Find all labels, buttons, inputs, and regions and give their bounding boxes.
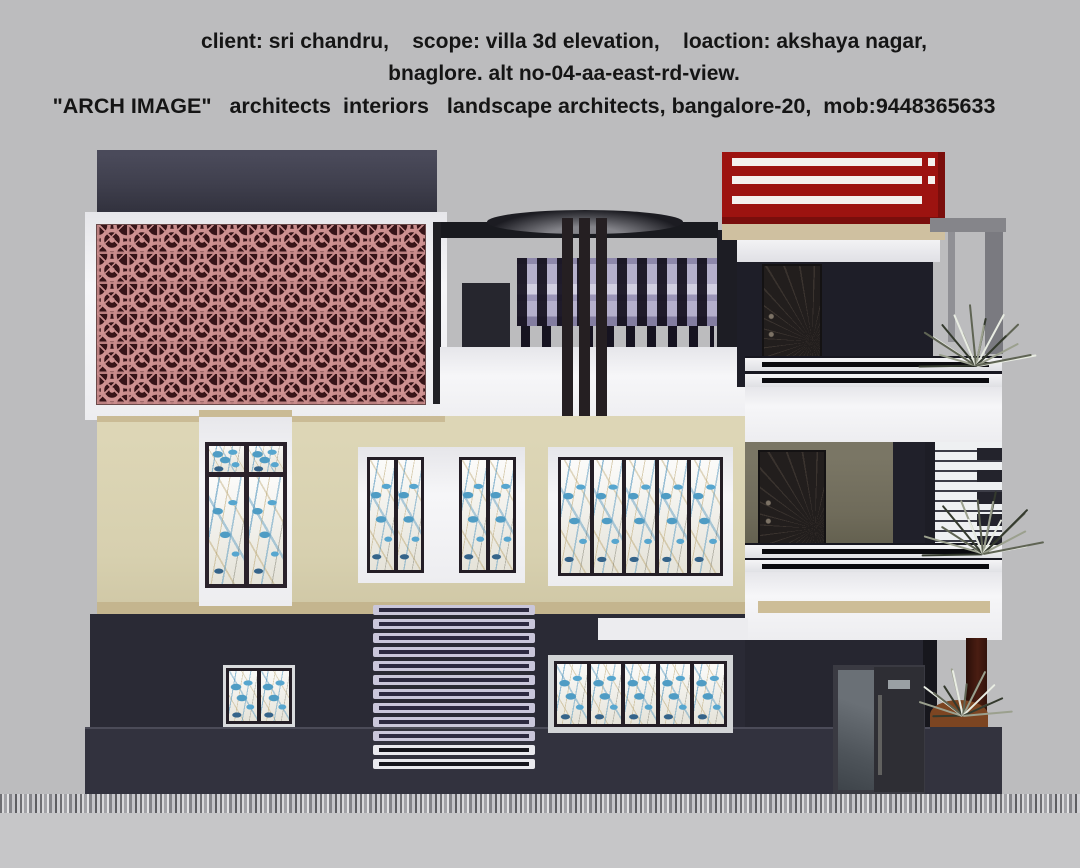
- glass-pane: [691, 460, 720, 573]
- louver-slat: [373, 731, 535, 741]
- window-left-bottom-row: [209, 477, 283, 584]
- terrace-tan-band: [722, 224, 945, 240]
- red-railing-edge-right: [938, 152, 945, 224]
- louver-slat: [373, 745, 535, 755]
- glass-pane: [398, 460, 422, 570]
- window-left-surround-top: [199, 410, 292, 417]
- jali-screen-panel: [96, 224, 426, 405]
- red-railing-slot-sq2: [928, 176, 935, 184]
- glass-pane: [209, 446, 244, 472]
- louver-screen: [373, 605, 535, 775]
- glass-pane: [209, 477, 244, 584]
- red-railing-edge-bottom: [722, 217, 945, 224]
- gate-handle: [878, 695, 882, 775]
- glass-pane: [490, 460, 514, 570]
- glass-pane: [561, 460, 590, 573]
- glass-pane: [625, 664, 655, 724]
- red-railing-slot-1: [732, 158, 922, 166]
- louver-slat: [373, 759, 535, 769]
- porch-slab: [598, 618, 748, 640]
- glass-pane: [462, 460, 486, 570]
- upper-balcony-parapet: [745, 387, 1002, 442]
- roof-balustrade-feet: [521, 326, 714, 347]
- gray-frame-beam: [930, 218, 1006, 232]
- gate-glass-panel: [838, 670, 874, 790]
- louver-slat: [373, 605, 535, 615]
- planter-box: [930, 727, 1002, 795]
- louver-slat: [373, 675, 535, 685]
- window-left-tall: [205, 442, 287, 588]
- title-line-location: bnaglore. alt no-04-aa-east-rd-view.: [24, 58, 1080, 90]
- glass-pane: [660, 664, 690, 724]
- glass-pane: [594, 460, 623, 573]
- entry-gate: [833, 665, 925, 795]
- red-terrace-railing: [722, 152, 945, 224]
- louver-slat: [373, 717, 535, 727]
- title-line-firm: "ARCH IMAGE" architects interiors landsc…: [0, 90, 1064, 122]
- parapet-tan-stripe: [758, 601, 990, 613]
- title-block: client: sri chandru, scope: villa 3d ele…: [0, 26, 1080, 122]
- upper-railing-band-2: [745, 374, 1002, 387]
- glass-pane: [229, 671, 257, 721]
- left-parapet-wall: [97, 150, 437, 213]
- glass-pane: [591, 664, 621, 724]
- red-railing-slot-sq1: [928, 158, 935, 166]
- gate-plate: [888, 680, 910, 689]
- right-tower-white-band: [737, 240, 940, 262]
- roof-balustrade-purple: [517, 258, 718, 326]
- louver-slat: [373, 647, 535, 657]
- pergola-mullion-3: [596, 218, 607, 430]
- louver-slat: [373, 661, 535, 671]
- glass-pane: [659, 460, 688, 573]
- glass-pane: [249, 446, 284, 472]
- red-railing-slot-2: [732, 176, 922, 184]
- glass-pane: [249, 477, 284, 584]
- louver-slat: [373, 689, 535, 699]
- louver-slat: [373, 619, 535, 629]
- roof-side-panel-left: [462, 283, 510, 347]
- lower-door: [758, 450, 826, 545]
- upper-door: [762, 264, 822, 358]
- glass-pane: [557, 664, 587, 724]
- window-mid-group-a: [367, 457, 424, 573]
- red-railing-slot-3: [732, 196, 922, 204]
- louver-slat: [373, 633, 535, 643]
- glass-pane: [261, 671, 289, 721]
- glass-pane: [370, 460, 394, 570]
- title-line-client: client: sri chandru, scope: villa 3d ele…: [24, 26, 1080, 58]
- window-bottom-panes: [548, 655, 733, 733]
- louver-slat: [373, 703, 535, 713]
- pergola-mullion-1: [562, 218, 573, 438]
- window-wide-panes: [558, 457, 723, 576]
- glass-pane: [694, 664, 724, 724]
- window-small-ground: [223, 665, 295, 727]
- window-mid-group-b: [459, 457, 516, 573]
- gray-frame-post-right: [985, 232, 1003, 354]
- pergola-mullion-2: [579, 218, 590, 434]
- window-left-top-row: [209, 446, 283, 472]
- glass-pane: [626, 460, 655, 573]
- gray-frame-post-thin: [948, 232, 955, 342]
- ground-lower: [0, 812, 1080, 868]
- paving-strip: [0, 794, 1080, 813]
